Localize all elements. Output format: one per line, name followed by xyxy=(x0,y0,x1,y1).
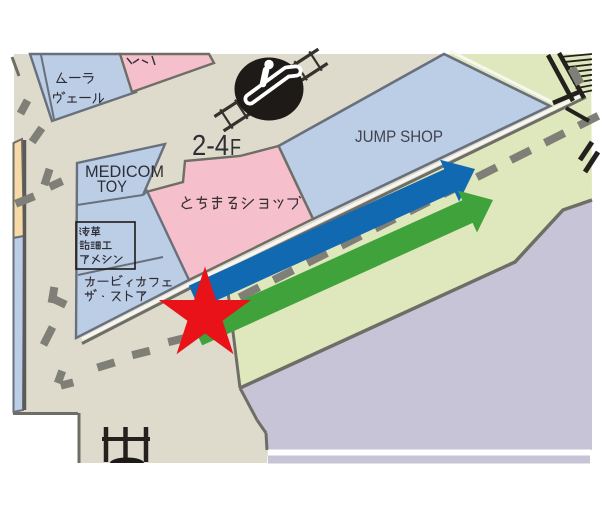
svg-text:F: F xyxy=(230,134,241,160)
svg-text:TOY: TOY xyxy=(97,178,127,196)
svg-text:JUMP SHOP: JUMP SHOP xyxy=(355,127,443,146)
svg-text:2-4: 2-4 xyxy=(192,130,229,162)
